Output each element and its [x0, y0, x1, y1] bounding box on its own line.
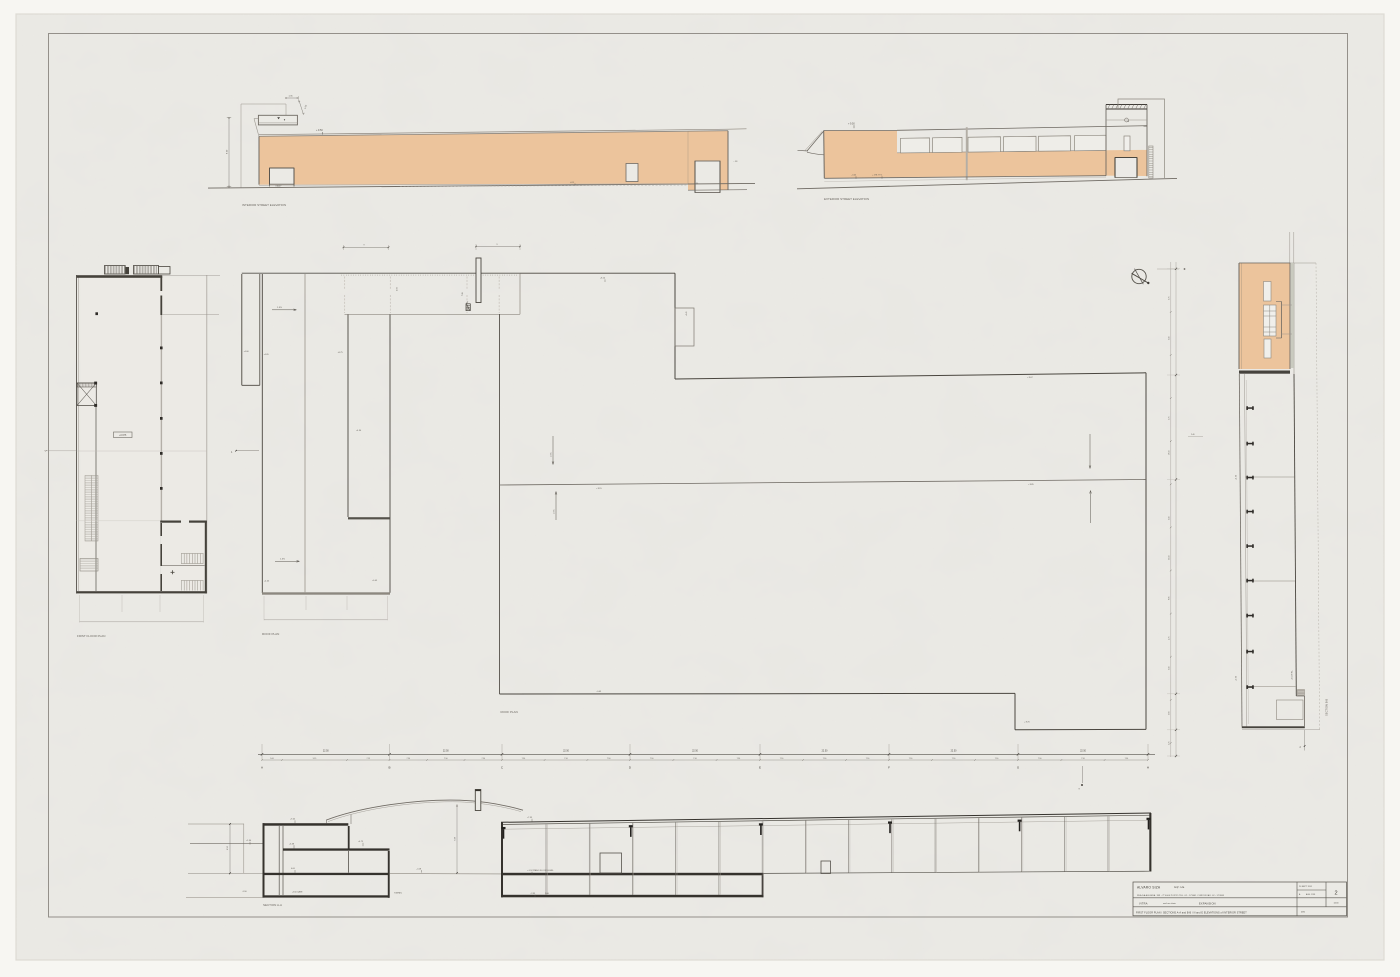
svg-text:22.50: 22.50	[323, 751, 329, 753]
svg-text:+ 8.70: + 8.70	[1024, 721, 1031, 723]
svg-text:7.50: 7.50	[522, 758, 526, 760]
svg-text:1.06: 1.06	[468, 306, 470, 310]
svg-text:VITRA: VITRA	[1139, 901, 1148, 905]
svg-text:7.50: 7.50	[780, 758, 784, 760]
svg-text:3.60: 3.60	[1169, 712, 1171, 716]
svg-text:A: A	[261, 765, 263, 769]
svg-text:+8.14: +8.14	[600, 278, 606, 280]
svg-text:ROOF PLAN: ROOF PLAN	[262, 632, 279, 636]
svg-text:7.50: 7.50	[995, 758, 999, 760]
svg-text:+0.50: +0.50	[1236, 675, 1238, 681]
svg-text:5.75: 5.75	[1169, 417, 1171, 421]
svg-text:+0.45: +0.45	[372, 580, 378, 582]
svg-text:+4.30: +4.30	[356, 430, 362, 432]
svg-text:7.50: 7.50	[444, 758, 448, 760]
svg-text:22.50: 22.50	[692, 751, 698, 753]
svg-text:7.50: 7.50	[482, 758, 486, 760]
svg-text:F: F	[888, 765, 890, 769]
svg-text:+4.50: +4.50	[1236, 474, 1238, 480]
svg-text:4.75: 4.75	[1169, 637, 1171, 641]
svg-text:1.5%: 1.5%	[551, 452, 553, 457]
svg-text:TUNNEL: TUNNEL	[394, 893, 403, 895]
svg-text:+0.45: +0.45	[686, 311, 688, 316]
svg-text:+9.45: +9.45	[290, 819, 296, 821]
svg-text:weil am rhein: weil am rhein	[1163, 902, 1177, 905]
svg-text:+1.90: +1.90	[246, 840, 252, 842]
svg-text:H: H	[1147, 765, 1149, 769]
svg-text:+7.95: +7.95	[527, 817, 533, 819]
svg-text:22.50: 22.50	[563, 751, 569, 753]
svg-text:AGU. 1991: AGU. 1991	[1306, 893, 1315, 896]
svg-text:9.15: 9.15	[313, 758, 317, 760]
svg-text:EXPANSION: EXPANSION	[1199, 901, 1216, 905]
svg-text:+4.05: +4.05	[264, 581, 270, 583]
svg-text:+6.38: +6.38	[289, 843, 295, 845]
svg-text:+8.75: +8.75	[338, 352, 344, 354]
svg-text:+ 8.07: + 8.07	[1027, 377, 1034, 379]
svg-text:ALVARO SIZA: ALVARO SIZA	[1137, 885, 1161, 889]
svg-text:FIRST FLOOR PLAN: FIRST FLOOR PLAN	[77, 634, 105, 638]
svg-text:+ 0.52 PIANO FLOOR LEVEL: + 0.52 PIANO FLOOR LEVEL	[527, 869, 555, 872]
svg-text:7.06: 7.06	[462, 292, 464, 296]
svg-text:+0.975: +0.975	[119, 435, 127, 437]
svg-text:+ 278.77 %: + 278.77 %	[872, 174, 882, 176]
svg-text:7.50: 7.50	[607, 758, 611, 760]
svg-text:22.50: 22.50	[951, 751, 957, 753]
svg-text:9.00: 9.00	[1169, 667, 1171, 671]
svg-text:E: E	[759, 765, 761, 769]
svg-text:+0.52 P.F.L.: +0.52 P.F.L.	[1292, 670, 1294, 680]
svg-text:-0.30: -0.30	[694, 183, 698, 185]
svg-text:7.50: 7.50	[952, 758, 956, 760]
svg-text:- .38: - .38	[734, 161, 738, 163]
svg-text:7.50: 7.50	[737, 758, 741, 760]
svg-text:+4.05: +4.05	[264, 354, 270, 356]
svg-text:7.50: 7.50	[564, 758, 568, 760]
svg-text:SECTION B-B: SECTION B-B	[1325, 699, 1329, 716]
svg-text:16.50: 16.50	[1169, 451, 1171, 456]
svg-text:8.85: 8.85	[1169, 597, 1171, 601]
svg-text:7.50: 7.50	[693, 758, 697, 760]
svg-text:7.15: 7.15	[367, 758, 371, 760]
svg-text:9.75: 9.75	[1169, 297, 1171, 301]
svg-text:-3.50 CAVE: -3.50 CAVE	[292, 891, 303, 894]
svg-text:22.50: 22.50	[1080, 751, 1086, 753]
svg-text:FIRST FLOOR PLAN / SECTIONS A-: FIRST FLOOR PLAN / SECTIONS A-A and B-B …	[1136, 911, 1247, 914]
svg-text:7.50: 7.50	[823, 758, 827, 760]
svg-text:22.50: 22.50	[822, 751, 828, 753]
svg-text:1.5%: 1.5%	[554, 509, 556, 514]
svg-text:7.50: 7.50	[1125, 758, 1129, 760]
svg-text:7.50: 7.50	[650, 758, 654, 760]
svg-text:+4.00: +4.00	[244, 351, 250, 353]
svg-text:22.50: 22.50	[443, 751, 449, 753]
svg-text:+ 8.85: + 8.85	[1028, 484, 1035, 486]
svg-text:1.5%: 1.5%	[280, 559, 285, 561]
svg-text:- 0.18: - 0.18	[416, 868, 422, 870]
svg-text:- 0.05: - 0.05	[851, 174, 857, 176]
svg-text:9.00: 9.00	[1169, 337, 1171, 341]
svg-text:+ 9.50: + 9.50	[848, 122, 855, 125]
svg-text:- 2.35: - 2.35	[530, 893, 536, 895]
svg-text:RUA DA ALEGRIA. 399 - 2º 4000: RUA DA ALEGRIA. 399 - 2º 4000 PORTO TEL.…	[1137, 894, 1225, 897]
svg-text:2.40: 2.40	[1191, 434, 1195, 436]
svg-text:22.50: 22.50	[1169, 556, 1171, 561]
svg-text:7.50: 7.50	[1081, 758, 1085, 760]
svg-text:EXTERIOR STREET ELEVATION: EXTERIOR STREET ELEVATION	[824, 197, 869, 201]
svg-text:3.00: 3.00	[1169, 517, 1171, 521]
svg-text:7.50: 7.50	[866, 758, 870, 760]
svg-text:5.75: 5.75	[1169, 742, 1171, 746]
svg-text:ROOF PLAN: ROOF PLAN	[501, 710, 518, 714]
svg-text:7.50: 7.50	[909, 758, 913, 760]
svg-text:INTERIOR STREET ELEVATION: INTERIOR STREET ELEVATION	[242, 203, 286, 207]
svg-text:7.50: 7.50	[1038, 758, 1042, 760]
svg-text:+ 9.50: + 9.50	[316, 129, 323, 132]
svg-text:2: 2	[1334, 891, 1337, 897]
svg-text:1.5%: 1.5%	[277, 307, 282, 309]
svg-text:-0.15: -0.15	[570, 182, 574, 184]
svg-text:+4.75: +4.75	[358, 841, 364, 843]
svg-text:1/200: 1/200	[1333, 903, 1339, 905]
svg-text:- 0.45: - 0.45	[596, 691, 602, 693]
svg-text:+ 8.15: + 8.15	[596, 488, 603, 490]
svg-text:20 SEPT 1991: 20 SEPT 1991	[1299, 886, 1313, 888]
svg-text:B: B	[388, 765, 390, 769]
svg-text:5.00: 5.00	[270, 758, 274, 760]
svg-text:7.50: 7.50	[407, 758, 411, 760]
svg-text:SECTION A-A: SECTION A-A	[263, 903, 282, 907]
